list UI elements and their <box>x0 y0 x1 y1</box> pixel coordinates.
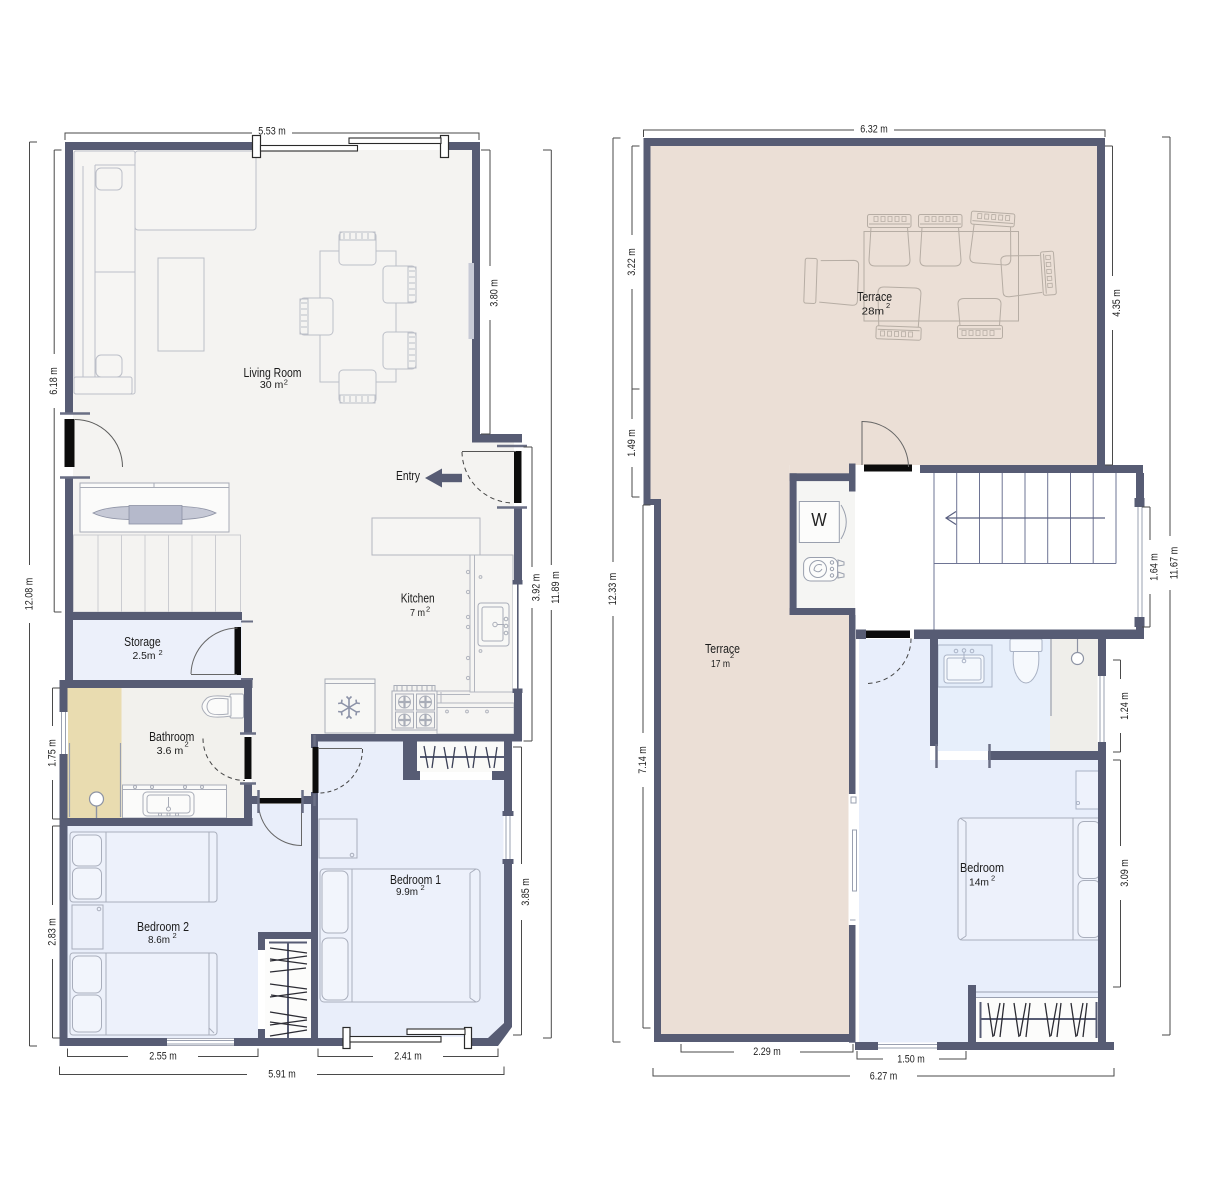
svg-text:2: 2 <box>284 378 288 387</box>
svg-text:3.22 m: 3.22 m <box>626 248 638 276</box>
svg-text:6.18 m: 6.18 m <box>48 367 60 395</box>
svg-text:1.64 m: 1.64 m <box>1149 553 1161 581</box>
svg-text:1.49 m: 1.49 m <box>626 429 638 457</box>
svg-text:2: 2 <box>991 874 995 883</box>
svg-text:2: 2 <box>426 605 430 614</box>
svg-text:12.33 m: 12.33 m <box>607 573 619 606</box>
svg-text:2: 2 <box>421 883 425 892</box>
svg-text:Living Room: Living Room <box>244 366 302 380</box>
svg-text:2: 2 <box>886 301 890 310</box>
svg-text:4.35 m: 4.35 m <box>1111 289 1123 317</box>
svg-text:W: W <box>811 509 827 530</box>
svg-text:2: 2 <box>185 740 189 749</box>
svg-text:2.29 m: 2.29 m <box>753 1046 781 1058</box>
svg-text:Bedroom: Bedroom <box>960 861 1004 875</box>
svg-text:7.14 m: 7.14 m <box>637 746 649 774</box>
svg-text:1.50 m: 1.50 m <box>897 1054 925 1066</box>
svg-text:5.91 m: 5.91 m <box>268 1069 296 1081</box>
svg-text:Kitchen: Kitchen <box>401 592 435 606</box>
svg-text:3.92 m: 3.92 m <box>531 574 543 602</box>
svg-text:6.32 m: 6.32 m <box>860 124 888 136</box>
svg-text:14m: 14m <box>969 878 989 889</box>
svg-text:11.89 m: 11.89 m <box>550 571 562 604</box>
svg-text:3.80 m: 3.80 m <box>489 279 501 307</box>
svg-text:3.6 m: 3.6 m <box>157 746 184 757</box>
svg-text:7 m: 7 m <box>410 608 425 619</box>
svg-text:12.08 m: 12.08 m <box>24 578 36 611</box>
svg-text:Entry: Entry <box>396 469 421 483</box>
svg-text:28m: 28m <box>862 307 884 318</box>
svg-text:Terrace: Terrace <box>705 642 740 656</box>
svg-text:1.24 m: 1.24 m <box>1119 692 1131 720</box>
svg-text:2.41 m: 2.41 m <box>394 1051 422 1063</box>
svg-text:3.09 m: 3.09 m <box>1119 859 1131 887</box>
svg-text:6.27 m: 6.27 m <box>870 1071 898 1083</box>
svg-text:2.5m: 2.5m <box>133 651 156 662</box>
svg-text:Bedroom 2: Bedroom 2 <box>137 920 189 934</box>
svg-text:Storage: Storage <box>124 635 161 649</box>
svg-text:2.83 m: 2.83 m <box>47 918 59 946</box>
svg-text:3.85 m: 3.85 m <box>520 878 532 906</box>
svg-text:9.9m: 9.9m <box>396 887 418 898</box>
svg-text:8.6m: 8.6m <box>148 935 170 946</box>
svg-text:5.53 m: 5.53 m <box>258 126 286 138</box>
svg-text:11.67 m: 11.67 m <box>1169 547 1181 580</box>
svg-text:17 m: 17 m <box>711 659 730 670</box>
svg-text:2: 2 <box>730 651 734 660</box>
svg-text:Bedroom 1: Bedroom 1 <box>390 873 441 887</box>
svg-text:2: 2 <box>159 648 163 657</box>
svg-text:1.75 m: 1.75 m <box>47 739 59 767</box>
svg-text:30 m: 30 m <box>260 380 284 391</box>
svg-text:2.55 m: 2.55 m <box>149 1051 177 1063</box>
svg-text:2: 2 <box>173 931 177 940</box>
